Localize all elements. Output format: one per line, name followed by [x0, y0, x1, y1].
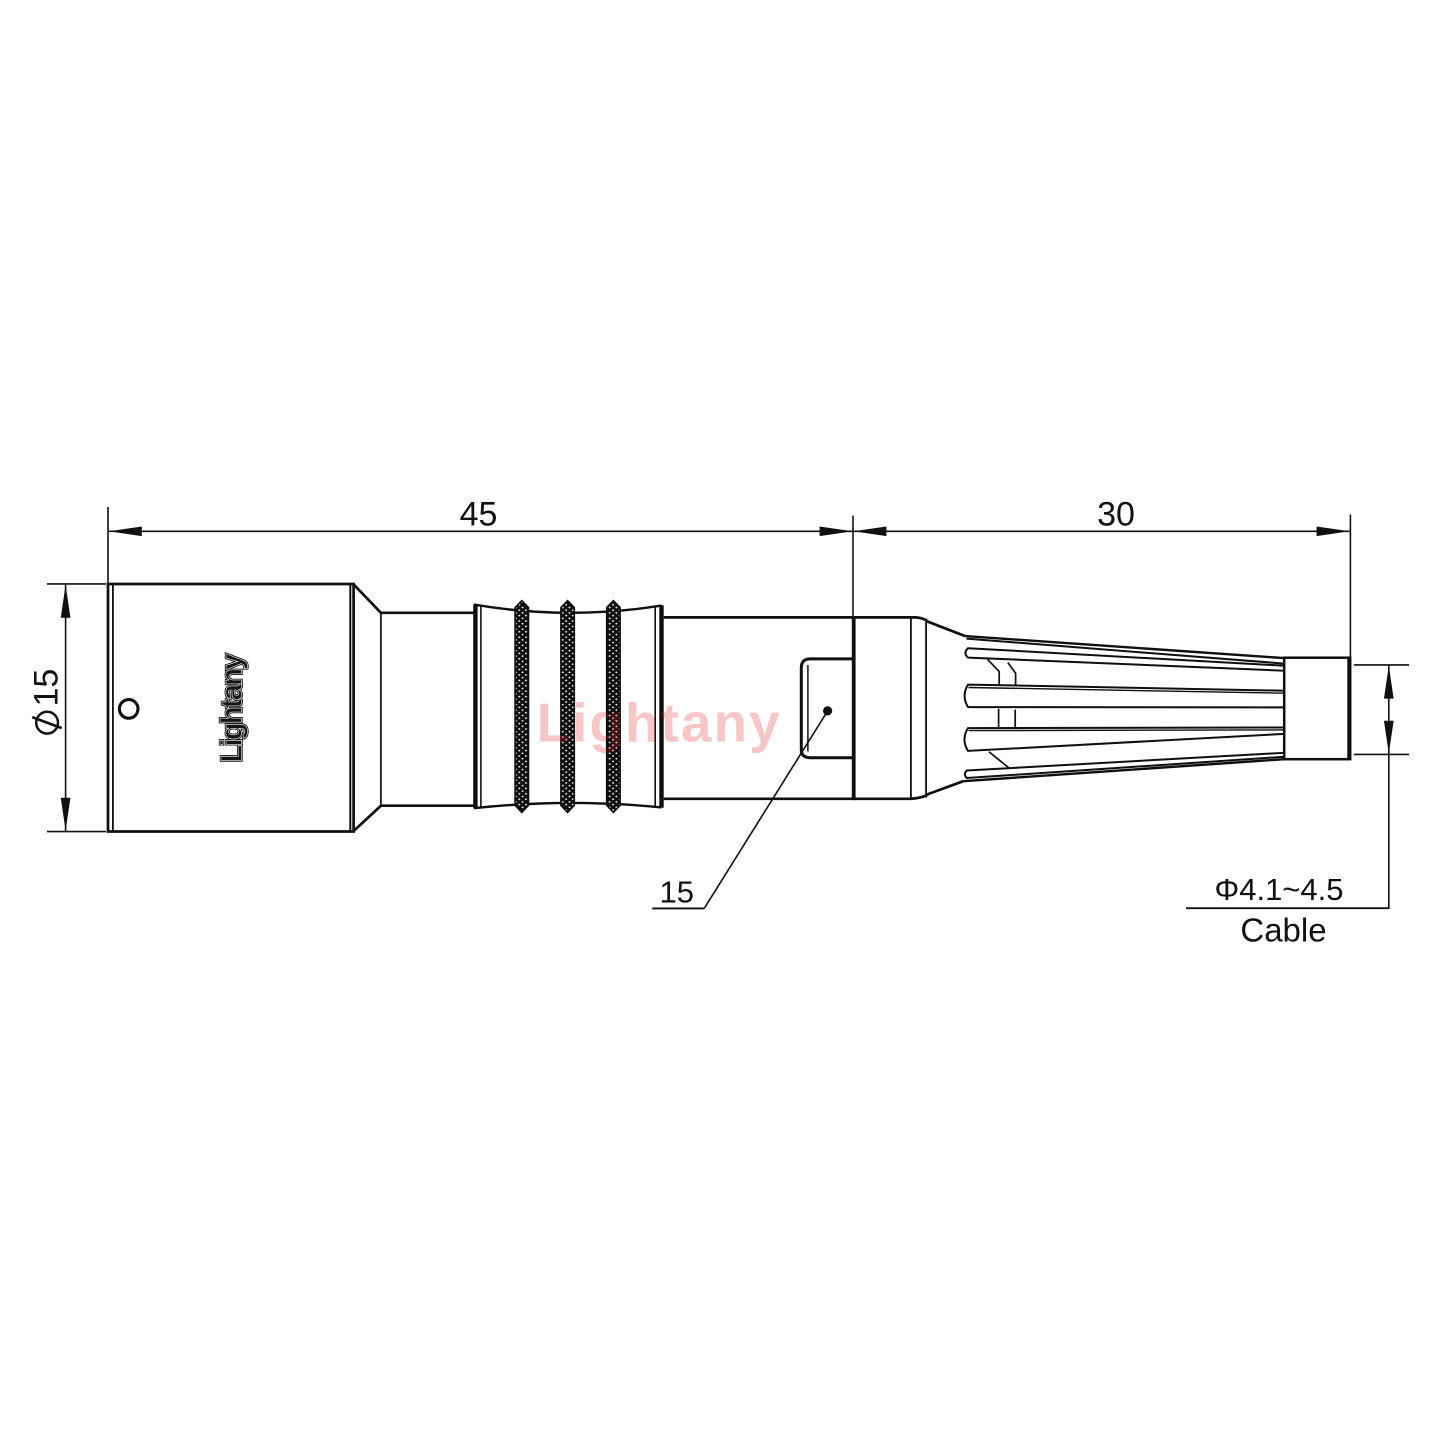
svg-text:Cable: Cable [1240, 912, 1326, 949]
svg-text:15: 15 [28, 669, 66, 707]
svg-text:Lightany: Lightany [537, 692, 782, 754]
svg-text:45: 45 [460, 496, 498, 534]
svg-text:30: 30 [1097, 496, 1135, 534]
svg-text:Lightany: Lightany [216, 653, 249, 763]
svg-text:Φ4.1~4.5: Φ4.1~4.5 [1214, 872, 1343, 907]
svg-text:15: 15 [660, 874, 694, 909]
